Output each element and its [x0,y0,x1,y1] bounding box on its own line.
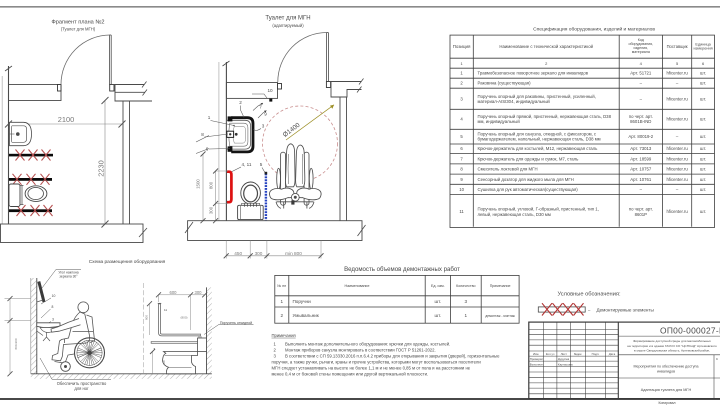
svg-text:Ед. изм.: Ед. изм. [431,284,445,288]
svg-text:мм, индивидуальный: мм, индивидуальный [478,119,521,124]
svg-text:(800): (800) [180,316,187,320]
svg-text:шт.: шт. [700,156,706,161]
svg-text:Выполнить монтаж дополнительно: Выполнить монтаж дополнительного оборудо… [285,341,450,346]
svg-text:Сенсорный дозатор для жидкого: Сенсорный дозатор для жидкого мыла для М… [478,177,574,182]
svg-text:Примечания: Примечания [272,333,296,338]
svg-text:450: 450 [234,251,242,256]
svg-text:демонтаж - монтаж: демонтаж - монтаж [485,314,515,318]
svg-text:3: 3 [465,299,468,304]
svg-text:материал-AISI304, индивидуальн: материал-AISI304, индивидуальный [478,99,551,104]
svg-text:шт.: шт. [700,177,706,182]
svg-text:шт.: шт. [700,146,706,151]
svg-text:Копировал: Копировал [659,401,676,405]
svg-text:в округе Свердловская область,: в округе Свердловская область, Артемовск… [634,349,710,353]
svg-text:Крючок-держатель для одежды и: Крючок-держатель для одежды и сумок, М7,… [478,156,580,161]
svg-text:300: 300 [195,290,203,295]
svg-text:300: 300 [208,206,213,214]
svg-text:Выполнил: Выполнил [530,362,544,366]
svg-text:шт.: шт. [435,299,442,304]
svg-text:2100: 2100 [58,115,74,124]
svg-text:на территории и в здании ГАУСО: на территории и в здании ГАУСО СО "ЦСПСи… [627,344,717,348]
svg-text:материала: материала [632,50,650,54]
svg-text:Сушилка для рук автоматическая: Сушилка для рук автоматическая(существую… [478,187,579,192]
svg-text:Крючок-держатель для костылей,: Крючок-держатель для костылей, М12, нерж… [478,146,599,151]
svg-text:10: 10 [267,88,273,93]
svg-text:шт.: шт. [700,71,706,76]
svg-text:800: 800 [208,181,213,189]
svg-text:Арт. 73013: Арт. 73013 [630,146,652,151]
svg-text:400: 400 [162,360,166,365]
svg-text:шт.: шт. [700,81,706,86]
svg-text:поручни, а также ручки, рычаги: поручни, а также ручки, рычаги, краны и … [272,359,482,364]
svg-text:бумагодержателем, напольный, н: бумагодержателем, напольный, нержавеющая… [478,137,601,142]
svg-text:Лист: Лист [561,352,568,356]
svg-text:1: 1 [208,115,211,120]
svg-text:менее 0,4 м от боковой стены п: менее 0,4 м от боковой стены помещения и… [272,371,429,376]
svg-text:шт.: шт. [700,134,706,139]
svg-text:шт.: шт. [700,167,706,172]
svg-text:8601Р: 8601Р [635,212,648,217]
svg-text:Умывальник: Умывальник [293,313,320,318]
svg-text:Количество: Количество [456,284,475,288]
svg-text:Примечание: Примечание [490,284,511,288]
svg-text:инвалидов: инвалидов [657,370,675,374]
svg-text:Смеситель локтевой для МГН: Смеситель локтевой для МГН [478,167,538,172]
svg-text:Условные обозначения:: Условные обозначения: [558,291,621,297]
svg-text:Изм.: Изм. [533,352,539,356]
svg-text:Поставщик: Поставщик [667,44,688,49]
svg-text:Раковина (существующая): Раковина (существующая) [478,81,532,86]
svg-text:Арт. 10761: Арт. 10761 [630,177,652,182]
svg-text:Фрагмент плана №2: Фрагмент плана №2 [52,20,105,26]
svg-text:1: 1 [281,299,284,304]
svg-text:№док.: №док. [574,352,583,356]
svg-text:Арт. 18599: Арт. 18599 [630,156,652,161]
svg-text:Ведомость объемов демонтажных: Ведомость объемов демонтажных работ [344,266,460,273]
svg-text:шт.: шт. [700,96,706,101]
svg-text:hficenter.ru: hficenter.ru [666,167,688,172]
svg-text:Адаптация туалета для МГН: Адаптация туалета для МГН [641,388,692,392]
svg-text:hficenter.ru: hficenter.ru [666,156,688,161]
svg-text:Подп.: Подп. [592,352,600,356]
svg-text:Формирование доступной среды д: Формирование доступной среды для маломоб… [633,339,711,343]
svg-text:4, 11: 4, 11 [242,162,252,167]
svg-text:hficenter.ru: hficenter.ru [666,209,688,214]
svg-text:2: 2 [239,100,242,105]
svg-text:3: 3 [262,124,265,129]
svg-text:Проверил: Проверил [530,357,544,361]
svg-text:Наименование: Наименование [345,284,370,288]
svg-text:левый, нержавеющая сталь, D30: левый, нержавеющая сталь, D30 мм [478,212,551,217]
svg-text:В соответствии с СП 59.13330.2: В соответствии с СП 59.13330.2016 п.п.6.… [285,353,500,358]
svg-text:Кол.уч: Кол.уч [546,352,555,356]
svg-text:Дата: Дата [609,352,616,356]
svg-text:Монтаж приборов санузла монтир: Монтаж приборов санузла монтировать в со… [285,347,436,352]
svg-text:Наименование с технической хар: Наименование с технической характеристик… [499,44,593,49]
svg-text:для ног: для ног [74,386,89,391]
svg-text:8601B-IND: 8601B-IND [630,119,651,124]
svg-text:min 800: min 800 [285,251,302,256]
svg-text:шт.: шт. [700,117,706,122]
svg-text:hficenter.ru: hficenter.ru [666,71,688,76]
svg-text:Дудулев: Дудулев [558,357,570,361]
svg-text:10: 10 [52,294,56,298]
svg-text:11: 11 [459,209,464,214]
svg-text:Мероприятия по обеспечению дос: Мероприятия по обеспечению доступа [634,365,699,369]
svg-text:11: 11 [164,308,167,312]
svg-text:hficenter.ru: hficenter.ru [666,177,688,182]
svg-text:Арт. 10757: Арт. 10757 [630,167,652,172]
svg-text:hficenter.ru: hficenter.ru [666,117,688,122]
svg-text:(Туалет для МГН): (Туалет для МГН) [61,27,96,32]
svg-text:1: 1 [465,313,468,318]
svg-text:зеркала 30°: зеркала 30° [59,274,78,278]
svg-text:3: 3 [52,318,54,322]
svg-text:2: 2 [281,313,284,318]
svg-text:800-900: 800-900 [14,338,18,349]
svg-text:9: 9 [264,112,267,117]
svg-text:8: 8 [52,305,54,309]
svg-text:№ пп: № пп [277,284,286,288]
svg-text:шт.: шт. [700,187,706,192]
svg-text:2230: 2230 [97,160,106,176]
svg-text:измерения: измерения [694,47,713,51]
svg-text:Позиция: Позиция [453,44,471,49]
svg-text:300: 300 [255,251,263,256]
svg-text:Арт. 51721: Арт. 51721 [630,71,652,76]
svg-text:(адаптируемый): (адаптируемый) [272,23,304,28]
svg-text:5: 5 [260,162,263,167]
svg-text:Спецификация оборудования, изд: Спецификация оборудования, изделий и мат… [533,25,655,32]
svg-text:МГН следует устанавливать на в: МГН следует устанавливать на высоте не б… [272,365,471,370]
svg-text:Схема размещения оборудования: Схема размещения оборудования [89,259,166,265]
svg-text:Травмобезопасное поворотное зе: Травмобезопасное поворотное зеркало для … [478,71,589,76]
svg-text:Арт. 80019-2: Арт. 80019-2 [628,134,653,139]
svg-text:Карташова: Карташова [558,362,573,366]
svg-text:800: 800 [145,315,149,320]
svg-text:шт.: шт. [435,313,442,318]
svg-text:ОП00-000027-И: ОП00-000027-И [660,326,720,336]
svg-text:шт.: шт. [700,209,706,214]
svg-text:600: 600 [170,290,178,295]
svg-text:Поручень откидной: Поручень откидной [220,321,252,325]
svg-text:Туалет для МГН: Туалет для МГН [265,16,310,22]
svg-text:1500: 1500 [196,179,201,189]
svg-text:10: 10 [459,187,464,192]
svg-text:Поручни: Поручни [293,299,312,304]
svg-text:hficenter.ru: hficenter.ru [666,96,688,101]
svg-text:Демонтируемые элементы: Демонтируемые элементы [597,308,654,313]
svg-text:8: 8 [201,132,204,137]
svg-text:hficenter.ru: hficenter.ru [666,146,688,151]
